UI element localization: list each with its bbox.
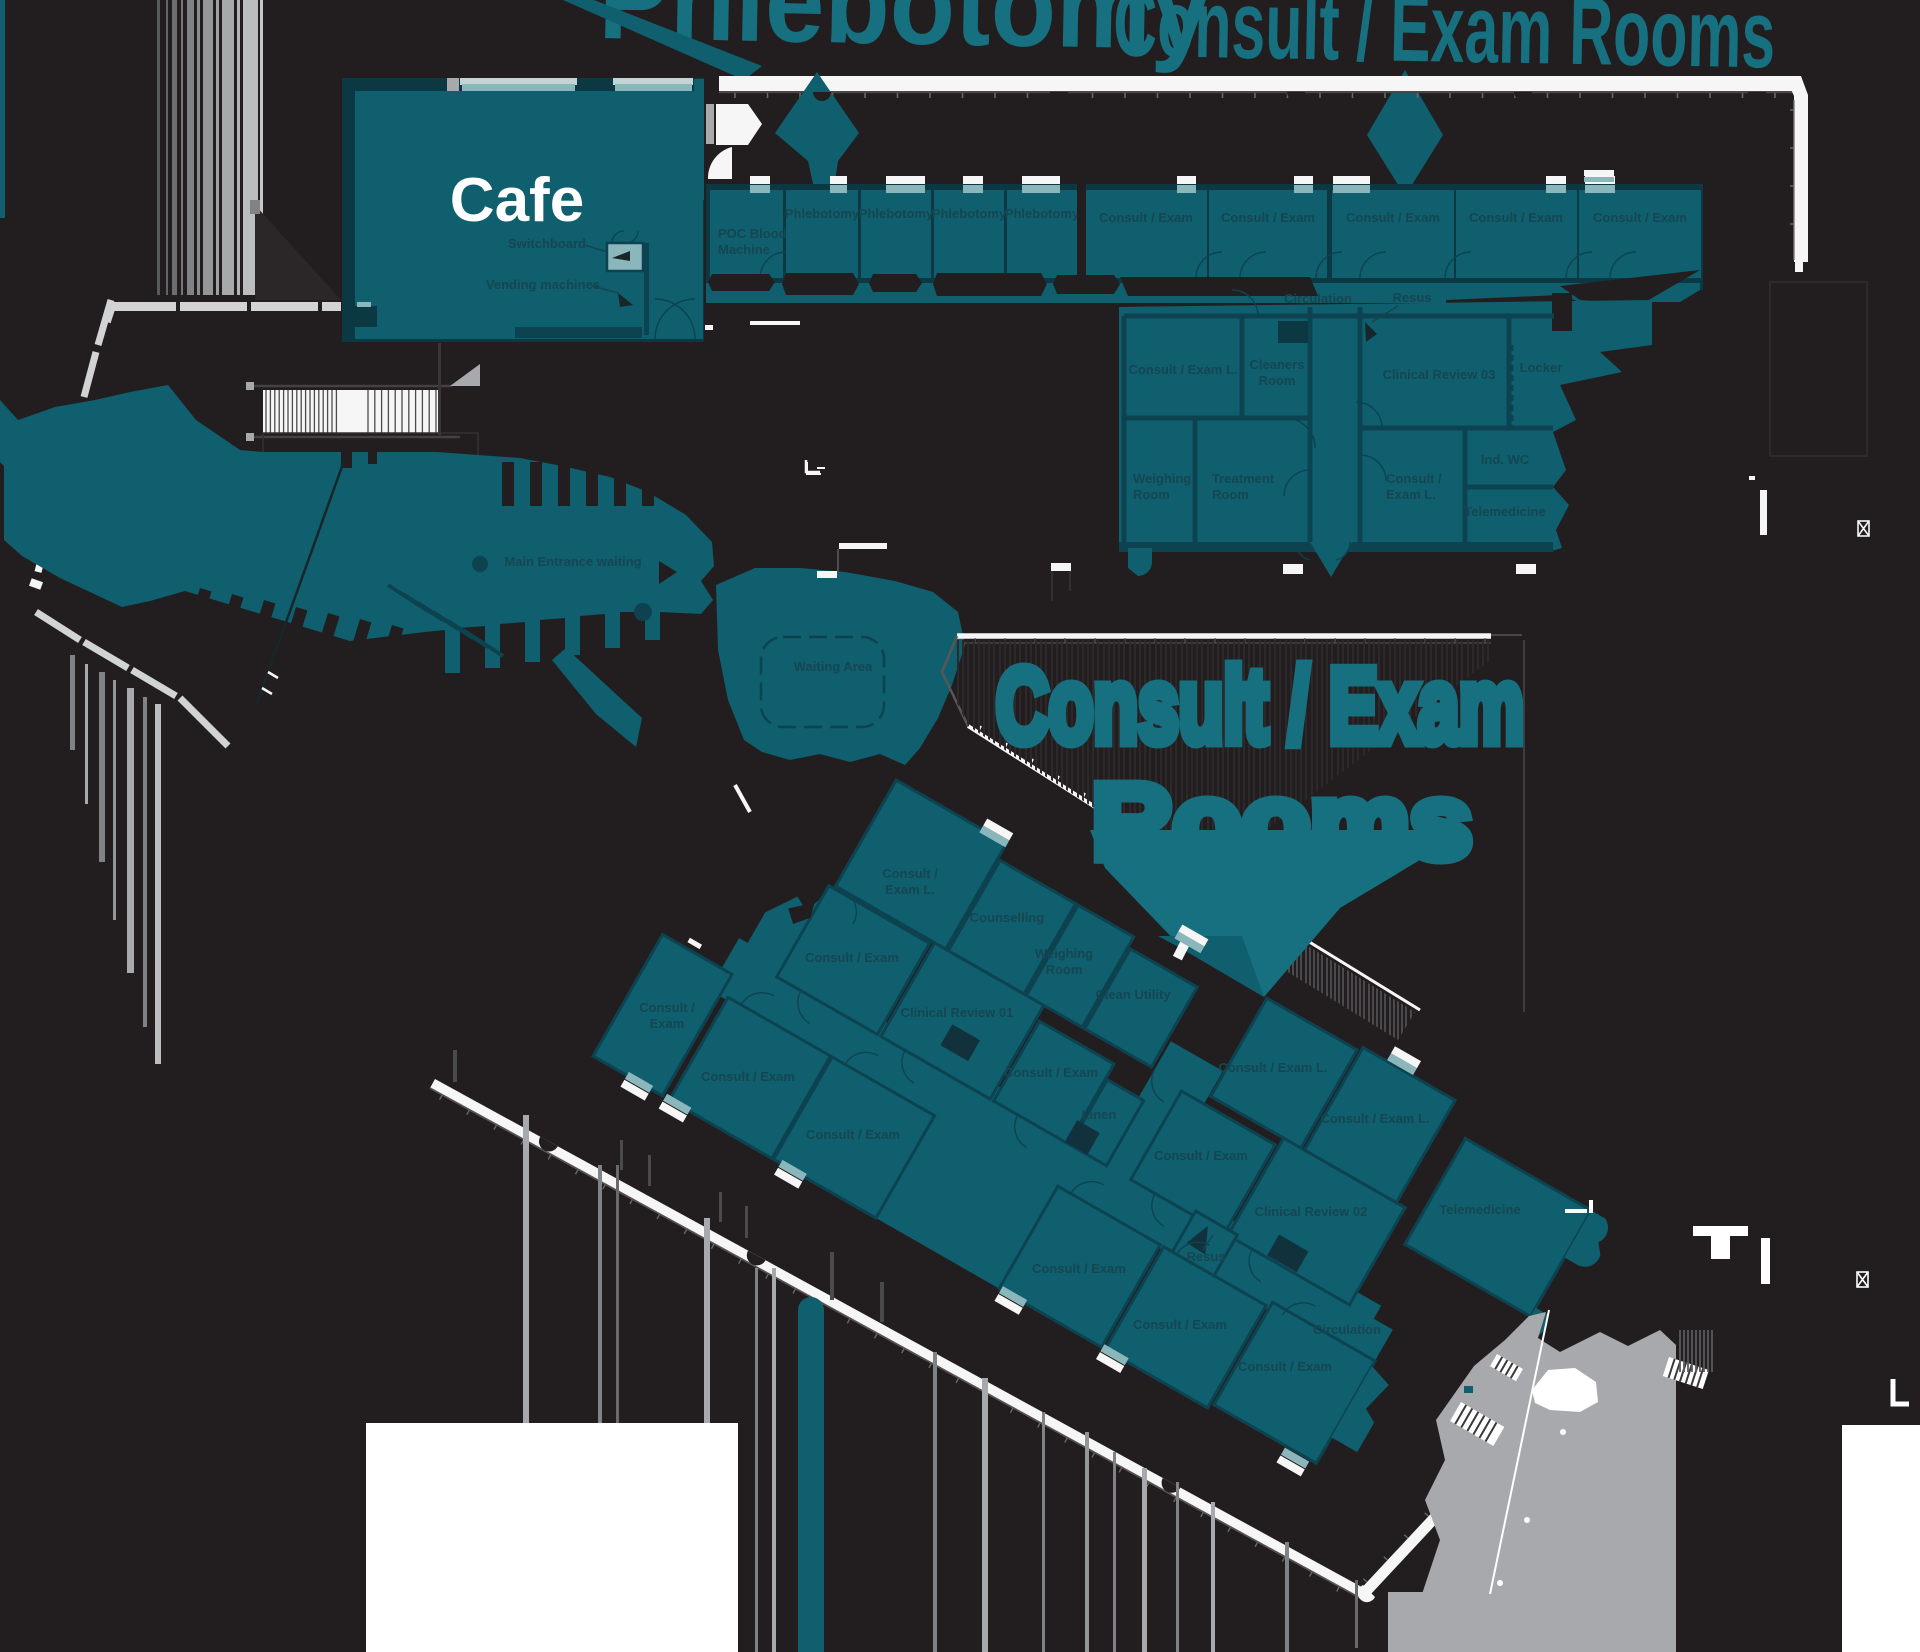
svg-text:Consult / Exam: Consult / Exam xyxy=(1032,1261,1126,1276)
svg-text:Consult / Exam L.: Consult / Exam L. xyxy=(1320,1111,1429,1126)
svg-text:Consult / Exam: Consult / Exam xyxy=(1593,210,1687,225)
svg-text:Consult / Exam: Consult / Exam xyxy=(806,1127,900,1142)
svg-text:Clinical Review 02: Clinical Review 02 xyxy=(1255,1204,1368,1219)
svg-text:Consult / Exam: Consult / Exam xyxy=(1004,1065,1098,1080)
svg-text:Main Entrance waiting: Main Entrance waiting xyxy=(504,554,641,569)
svg-text:Clean Utility: Clean Utility xyxy=(1095,987,1171,1002)
svg-text:Vending machines: Vending machines xyxy=(486,277,600,292)
svg-text:Consult / Exam: Consult / Exam xyxy=(1133,1317,1227,1332)
svg-text:Consult /Exam L.: Consult /Exam L. xyxy=(1386,471,1442,502)
svg-text:Consult / Exam: Consult / Exam xyxy=(1346,210,1440,225)
svg-text:Waiting Area: Waiting Area xyxy=(794,659,873,674)
svg-text:Switchboard: Switchboard xyxy=(508,236,586,251)
svg-text:Phlebotomy: Phlebotomy xyxy=(932,206,1007,221)
svg-text:Consult / Exam: Consult / Exam xyxy=(1469,210,1563,225)
svg-text:Telemedicine: Telemedicine xyxy=(1464,504,1545,519)
svg-text:Consult /Exam L.: Consult /Exam L. xyxy=(882,866,938,897)
svg-text:Consult / Exam: Consult / Exam xyxy=(996,647,1524,765)
svg-text:Linen: Linen xyxy=(1082,1107,1117,1122)
svg-text:Consult / Exam Rooms: Consult / Exam Rooms xyxy=(1112,0,1776,89)
svg-text:Consult / Exam L.: Consult / Exam L. xyxy=(1128,362,1237,377)
svg-text:Phlebotomy: Phlebotomy xyxy=(1005,206,1080,221)
svg-text:Consult / Exam: Consult / Exam xyxy=(805,950,899,965)
svg-text:Clinical Review 03: Clinical Review 03 xyxy=(1383,367,1496,382)
svg-text:Consult / Exam: Consult / Exam xyxy=(1221,210,1315,225)
svg-text:Consult / Exam: Consult / Exam xyxy=(701,1069,795,1084)
svg-text:Circulation: Circulation xyxy=(1284,291,1352,306)
svg-text:Resus: Resus xyxy=(1392,290,1431,305)
svg-text:Locker: Locker xyxy=(1520,360,1563,375)
svg-text:Ind. WC: Ind. WC xyxy=(1481,452,1530,467)
svg-text:Consult / Exam L.: Consult / Exam L. xyxy=(1218,1060,1327,1075)
svg-text:Consult / Exam: Consult / Exam xyxy=(1238,1359,1332,1374)
svg-text:Cafe: Cafe xyxy=(450,166,584,235)
svg-text:Phlebotomy: Phlebotomy xyxy=(859,206,934,221)
svg-text:Clinical Review 01: Clinical Review 01 xyxy=(901,1005,1014,1020)
svg-text:Telemedicine: Telemedicine xyxy=(1439,1202,1520,1217)
svg-text:Resus: Resus xyxy=(1186,1249,1225,1264)
svg-text:Consult / Exam: Consult / Exam xyxy=(1154,1148,1248,1163)
svg-text:Counselling: Counselling xyxy=(970,910,1044,925)
svg-text:Consult / Exam: Consult / Exam xyxy=(1099,210,1193,225)
svg-text:Phlebotomy: Phlebotomy xyxy=(785,206,860,221)
svg-text:Circulation: Circulation xyxy=(1313,1322,1381,1337)
